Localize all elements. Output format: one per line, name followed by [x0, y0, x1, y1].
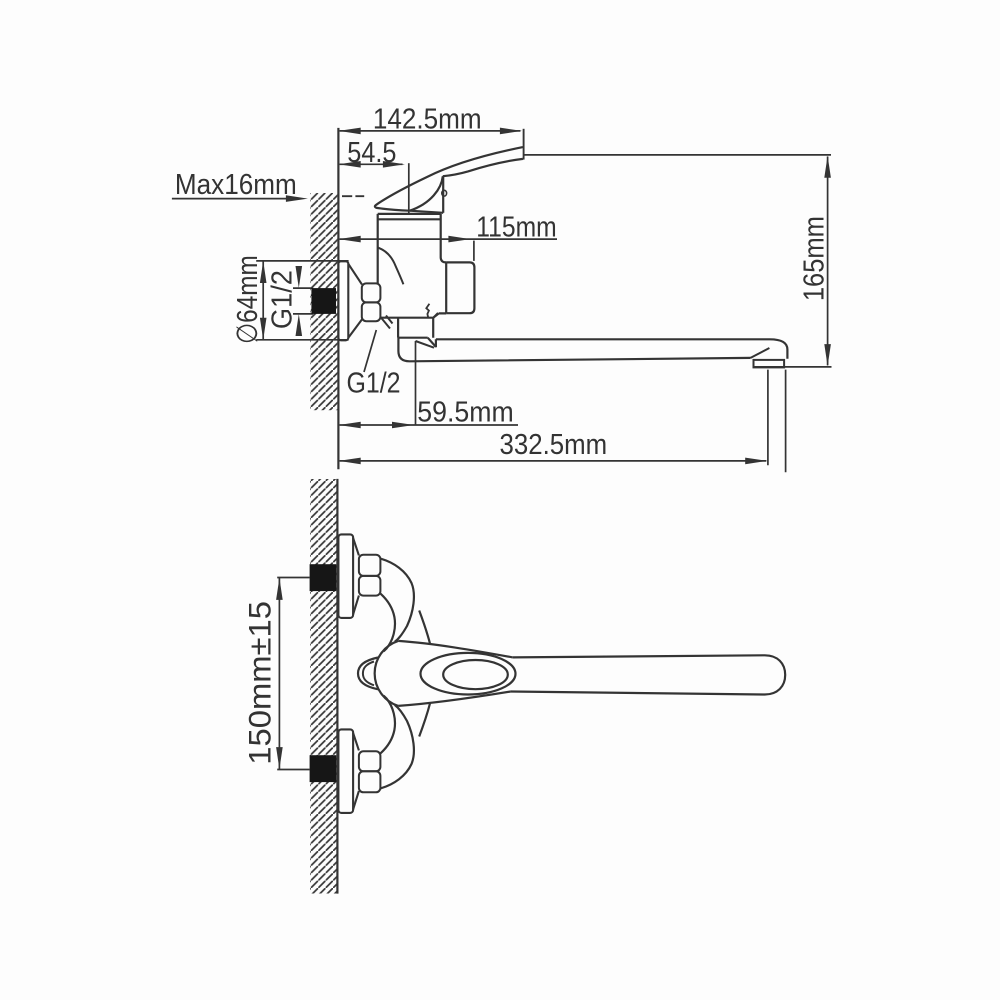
svg-text:59.5mm: 59.5mm: [417, 396, 513, 428]
svg-text:G1/2: G1/2: [266, 270, 298, 329]
svg-text:142.5mm: 142.5mm: [373, 102, 482, 135]
svg-text:G1/2: G1/2: [347, 367, 401, 399]
svg-text:Max16mm: Max16mm: [175, 168, 297, 201]
svg-text:115mm: 115mm: [476, 211, 556, 243]
svg-text:150mm±15: 150mm±15: [242, 601, 277, 765]
svg-text:∅64mm: ∅64mm: [231, 255, 263, 344]
svg-text:332.5mm: 332.5mm: [500, 428, 608, 461]
svg-text:165mm: 165mm: [797, 216, 830, 301]
